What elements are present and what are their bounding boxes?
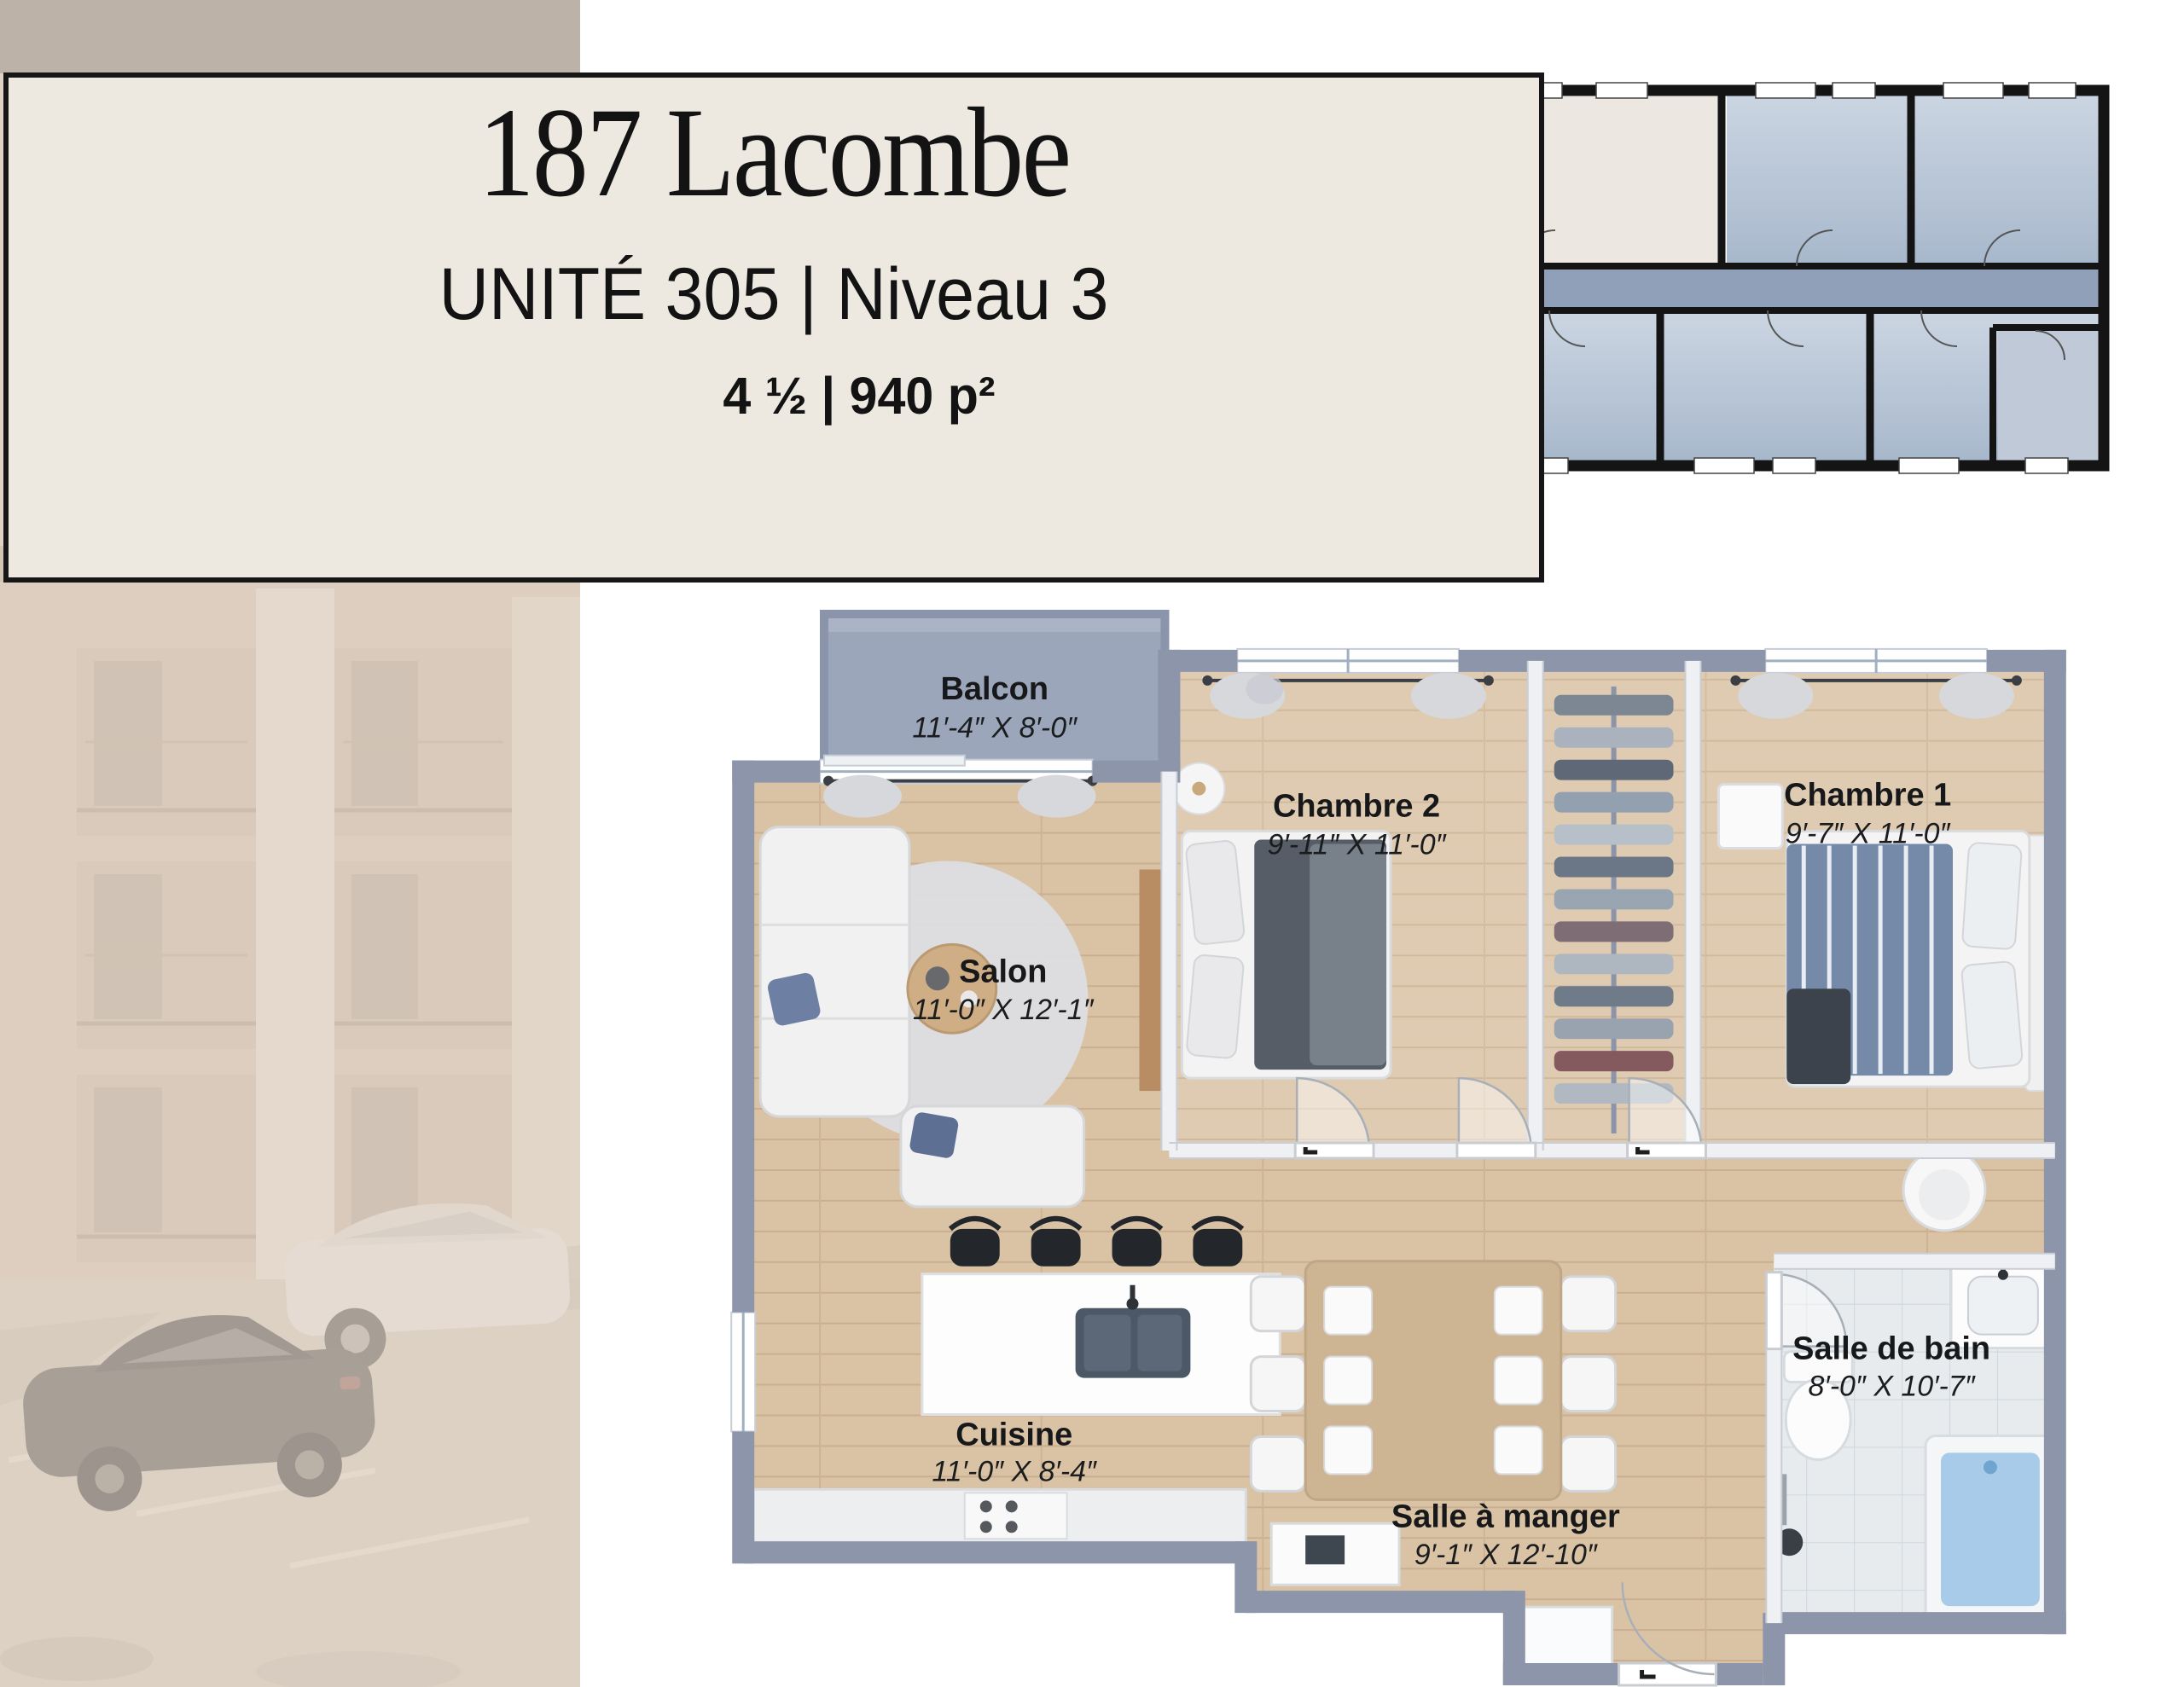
key-plan-room bbox=[1727, 96, 1908, 263]
room-label-dims: 11′-4″ X 8′-0″ bbox=[912, 712, 1077, 745]
door-leaf bbox=[1766, 1272, 1781, 1349]
unit-size-line: 4 ½ | 940 p² bbox=[117, 370, 1601, 422]
room-label-name: Salle à manger bbox=[1391, 1499, 1620, 1534]
key-plan-subroom bbox=[1998, 331, 2099, 461]
room-label-dims: 9′-7″ X 11′-0″ bbox=[1786, 818, 1951, 850]
floorplan-sheet: 187 Lacombe UNITÉ 305 | Niveau 3 4 ½ | 9… bbox=[0, 0, 2184, 1687]
toilet bbox=[1784, 1352, 1852, 1460]
room-label-name: Chambre 2 bbox=[1273, 789, 1440, 825]
bed-chambre1 bbox=[1786, 832, 2051, 1092]
key-plan-corridor bbox=[1454, 270, 2099, 307]
tv-console bbox=[1139, 869, 1161, 1091]
door-leaf bbox=[1457, 1143, 1536, 1158]
bed-chambre2 bbox=[1182, 832, 1391, 1079]
bathtub bbox=[1926, 1435, 2055, 1623]
throw-pillow bbox=[766, 971, 822, 1027]
nightstand-cube bbox=[1718, 785, 1782, 849]
unit-level-line: UNITÉ 305 | Niveau 3 bbox=[55, 258, 1493, 331]
key-plan-room bbox=[1664, 314, 1867, 461]
room-label-name: Cuisine bbox=[955, 1417, 1072, 1452]
room-label-dims: 8′-0″ X 10′-7″ bbox=[1809, 1371, 1976, 1403]
room-label-dims: 9′-1″ X 12′-10″ bbox=[1414, 1539, 1598, 1571]
accent-chair bbox=[1903, 1149, 1985, 1231]
top-gray-strip bbox=[0, 0, 580, 73]
title-card: 187 Lacombe UNITÉ 305 | Niveau 3 4 ½ | 9… bbox=[3, 72, 1544, 583]
folded-throw bbox=[1786, 988, 1850, 1084]
throw-pillow bbox=[909, 1111, 959, 1159]
room-label-name: Salle de bain bbox=[1792, 1331, 1990, 1367]
floor-plan-3d: Balcon 11′-4″ X 8′-0″ Chambre 2 9′-11″ X… bbox=[708, 588, 2107, 1687]
sofa bbox=[760, 827, 909, 1116]
room-label-dims: 9′-11″ X 11′-0″ bbox=[1268, 829, 1447, 861]
room-label-name: Chambre 1 bbox=[1784, 778, 1951, 814]
room-label-dims: 11′-0″ X 8′-4″ bbox=[932, 1455, 1097, 1487]
stove bbox=[965, 1493, 1067, 1539]
room-label-name: Salon bbox=[959, 954, 1047, 989]
room-label-dims: 11′-0″ X 12′-1″ bbox=[913, 994, 1095, 1026]
entry-closet bbox=[1520, 1607, 1612, 1668]
key-plan-room bbox=[1914, 96, 2099, 263]
room-label-name: Balcon bbox=[941, 671, 1048, 707]
page-title: 187 Lacombe bbox=[101, 88, 1448, 218]
cabinet-item bbox=[1305, 1535, 1345, 1564]
